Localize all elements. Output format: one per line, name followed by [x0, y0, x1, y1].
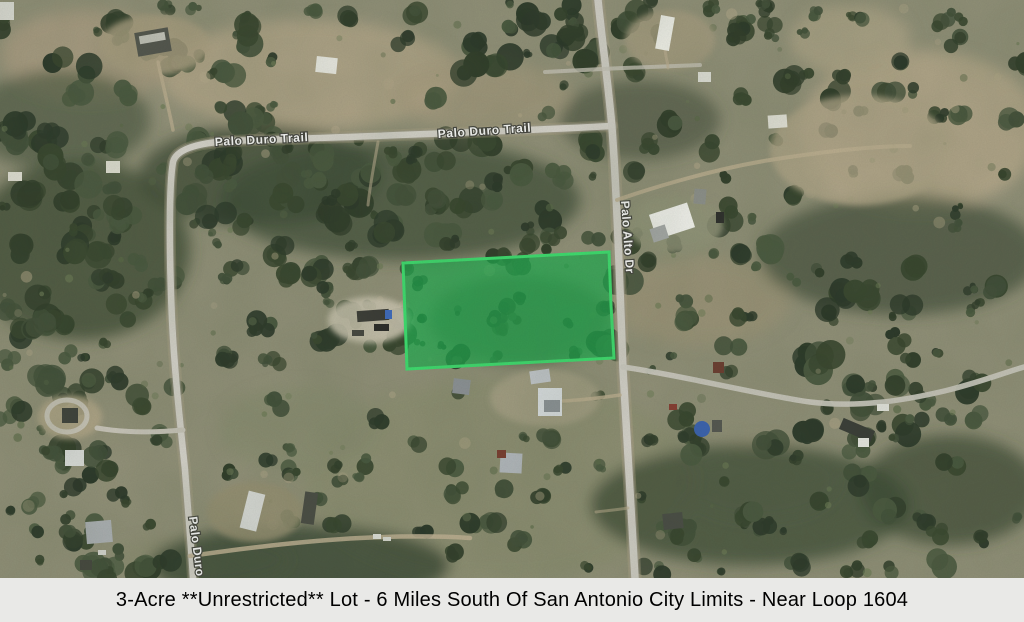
caption-text: 3-Acre **Unrestricted** Lot - 6 Miles So…: [116, 589, 908, 612]
grain-overlay: [0, 0, 1024, 578]
listing-caption: 3-Acre **Unrestricted** Lot - 6 Miles So…: [0, 578, 1024, 622]
listing-image: Palo Duro Trail Palo Duro Trail Palo Alt…: [0, 0, 1024, 622]
satellite-map: Palo Duro Trail Palo Duro Trail Palo Alt…: [0, 0, 1024, 578]
